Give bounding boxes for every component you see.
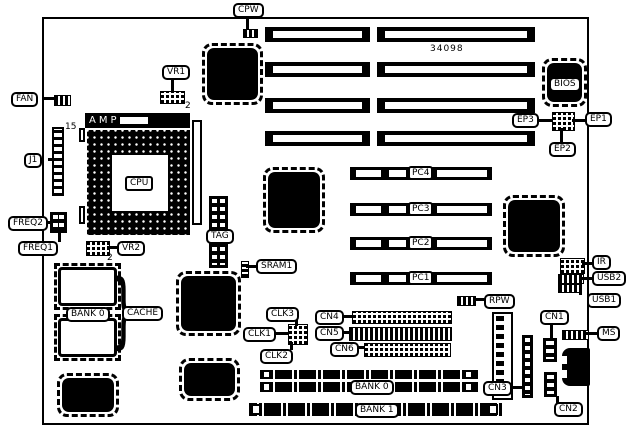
- cpw-connector: [243, 29, 258, 38]
- isa-slot-1-left: [265, 27, 370, 42]
- rpw-label: RPW: [484, 294, 515, 309]
- qfp-chip-southwest: [62, 378, 114, 412]
- simm-latch: [251, 404, 261, 415]
- isa-slot-2-left: [265, 62, 370, 77]
- socket-tab: [79, 128, 85, 142]
- qfp-chip-south-lower: [184, 363, 235, 396]
- keyboard-din-connector: [562, 348, 590, 386]
- ep2-label: EP2: [549, 142, 576, 157]
- sram1-label: SRAM1: [256, 259, 297, 274]
- clk2-label: CLK2: [260, 349, 293, 364]
- pci-slot-segment: [437, 206, 487, 213]
- j1-pin15-marker: 15: [65, 122, 76, 132]
- lead-line: [276, 332, 289, 335]
- cache-bank0-label: BANK 0: [66, 307, 110, 322]
- vr1-label: VR1: [162, 65, 190, 80]
- pci-slot-segment: [389, 170, 406, 177]
- usb2-label: USB2: [592, 271, 626, 286]
- cpu-label: CPU: [125, 176, 153, 191]
- isa-slot-4-left: [265, 131, 370, 146]
- isa-slot-2-right: [377, 62, 535, 77]
- din-notch: [562, 356, 567, 364]
- pci-slot-segment: [437, 275, 487, 282]
- simm-socket-bank0-row1: [260, 370, 478, 379]
- cn1-connector: [543, 338, 557, 362]
- vr1-pin2-marker: 2: [185, 101, 191, 111]
- board-part-number: 34098: [430, 44, 464, 54]
- qfp-chip-south-upper: [181, 276, 236, 331]
- pci-slot-segment: [356, 170, 381, 177]
- qfp-chip-center: [268, 172, 320, 228]
- pci-slot-segment: [437, 170, 487, 177]
- lead-line: [511, 386, 523, 389]
- usb1-label: USB1: [587, 293, 621, 308]
- fan-connector: [54, 95, 71, 106]
- qfp-chip-east: [508, 200, 560, 252]
- qfp-chip-north: [207, 48, 258, 100]
- freq-jumper-block: [50, 212, 67, 233]
- lead-line: [579, 289, 582, 295]
- pci-slot-segment: [389, 206, 406, 213]
- tag-label: TAG: [206, 229, 234, 244]
- lead-line: [550, 323, 553, 339]
- cn6-connector: [364, 343, 451, 357]
- j1-label: J1: [24, 153, 42, 168]
- freq2-label: FREQ2: [8, 216, 48, 231]
- simm-latch: [464, 370, 473, 379]
- isa-slot-1-right: [377, 27, 535, 42]
- cn1-label: CN1: [540, 310, 569, 325]
- motherboard-diagram: 34098 PC4 PC3 PC2 PC1 BIOS AMP: [0, 0, 630, 431]
- clk1-label: CLK1: [243, 327, 276, 342]
- pci-slot-segment: [356, 275, 381, 282]
- simm-latch: [262, 382, 271, 392]
- cn4-label: CN4: [315, 310, 344, 325]
- bios-label: BIOS: [549, 77, 581, 92]
- cpw-label: CPW: [233, 3, 264, 18]
- freq1-label: FREQ1: [18, 241, 58, 256]
- pci-slot-pc2-label: PC2: [408, 236, 433, 250]
- lead-line: [572, 119, 586, 122]
- pci-slot-segment: [389, 275, 406, 282]
- lead-line: [246, 16, 249, 30]
- fan-label: FAN: [11, 92, 38, 107]
- ep1-label: EP1: [585, 112, 612, 127]
- lead-line: [58, 233, 61, 242]
- socket-tab: [79, 206, 85, 224]
- isa-slot-3-right: [377, 98, 535, 113]
- cn3-connector: [522, 335, 533, 398]
- bank1-label: BANK 1: [355, 403, 399, 418]
- ir-header: [560, 258, 585, 274]
- simm-latch: [262, 370, 271, 379]
- socket-lever-bar: [192, 120, 202, 225]
- pci-slot-pc1-label: PC1: [408, 271, 433, 285]
- cn5-label: CN5: [315, 326, 344, 341]
- lead-line: [537, 119, 553, 122]
- din-notch: [562, 370, 567, 378]
- clk3-label: CLK3: [266, 307, 299, 322]
- lead-line: [560, 128, 563, 143]
- amp-socket-bar: AMP: [85, 113, 190, 128]
- cn5-connector: [349, 327, 452, 341]
- simm-latch: [488, 404, 498, 415]
- lead-line: [48, 158, 54, 161]
- cache-label: CACHE: [122, 306, 163, 321]
- pci-slot-segment: [437, 240, 487, 247]
- pci-slot-segment: [356, 240, 381, 247]
- amp-label: AMP: [89, 115, 120, 126]
- cn4-connector: [352, 311, 452, 324]
- amp-window: [120, 117, 148, 124]
- cn6-label: CN6: [330, 342, 359, 357]
- bank0-label: BANK 0: [350, 380, 394, 395]
- vr1-header: [160, 91, 185, 104]
- sram1-jumper: [241, 261, 249, 278]
- pci-slot-segment: [389, 240, 406, 247]
- j1-header-strip: [52, 127, 64, 196]
- isa-slot-3-left: [265, 98, 370, 113]
- ms-header: [562, 330, 589, 340]
- vr2-pin2-marker: 2: [107, 253, 113, 263]
- cn2-label: CN2: [554, 402, 583, 417]
- ir-label: IR: [592, 255, 611, 270]
- simm-latch: [464, 382, 473, 392]
- ep3-label: EP3: [512, 113, 539, 128]
- pci-slot-segment: [356, 206, 381, 213]
- isa-slot-4-right: [377, 131, 535, 146]
- pci-slot-pc4-label: PC4: [408, 166, 433, 180]
- lead-line: [44, 97, 54, 100]
- vr2-label: VR2: [117, 241, 145, 256]
- cn3-label: CN3: [483, 381, 512, 396]
- ms-label: MS: [597, 326, 620, 341]
- cn2-connector: [544, 372, 557, 397]
- pci-slot-pc3-label: PC3: [408, 202, 433, 216]
